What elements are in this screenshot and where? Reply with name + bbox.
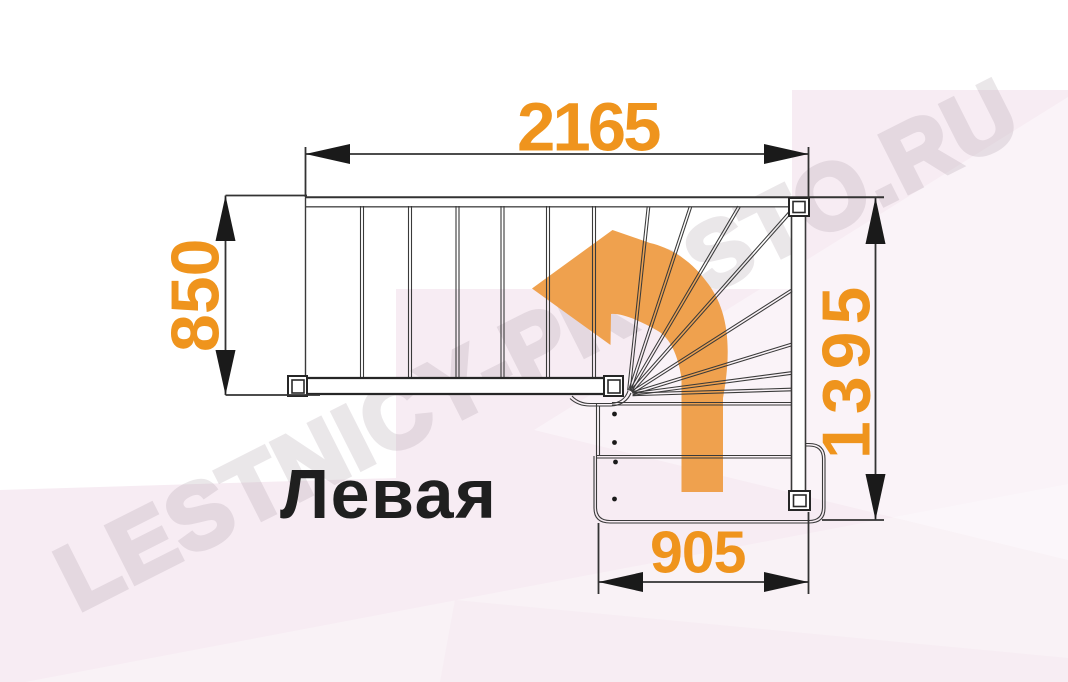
svg-text:905: 905 [650, 520, 746, 586]
svg-text:2165: 2165 [517, 89, 660, 166]
svg-text:850: 850 [158, 239, 234, 352]
svg-text:1395: 1395 [809, 280, 885, 459]
svg-text:Левая: Левая [280, 455, 497, 533]
